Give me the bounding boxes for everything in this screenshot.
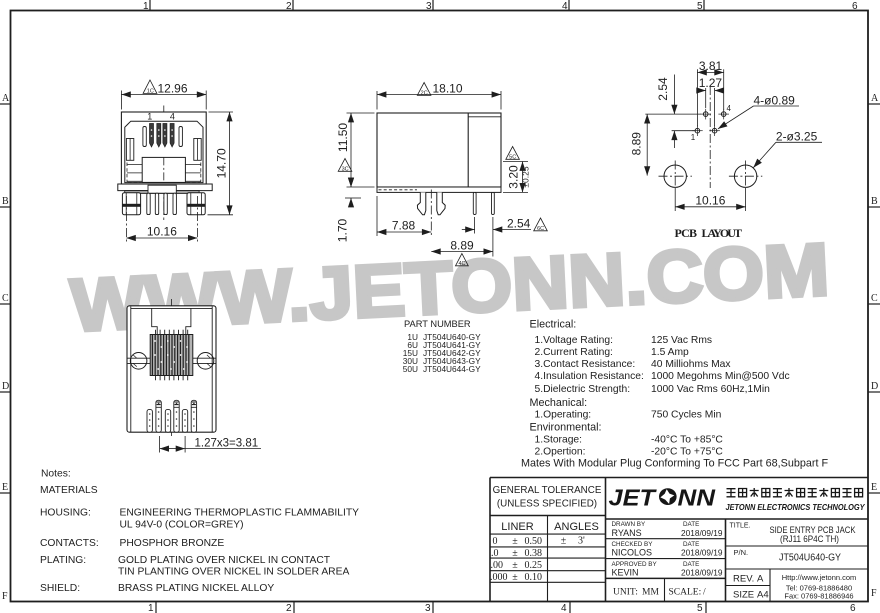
svg-text:JET: JET (609, 485, 657, 511)
svg-text:2: 2 (286, 603, 292, 613)
svg-text:125 Vac Rms: 125 Vac Rms (651, 335, 712, 346)
svg-text:4: 4 (170, 111, 175, 121)
svg-text:3': 3' (578, 536, 585, 547)
svg-text:F: F (871, 588, 877, 599)
svg-text:1C: 1C (147, 89, 154, 95)
svg-text:Mechanical:: Mechanical: (530, 397, 588, 409)
svg-text:0.50: 0.50 (525, 536, 543, 547)
svg-text:PLATING:: PLATING: (40, 555, 86, 566)
svg-text:Notes:: Notes: (41, 469, 71, 480)
svg-text:SHIELD:: SHIELD: (40, 583, 80, 594)
svg-text:E: E (2, 482, 8, 493)
svg-text:Fax: 0769-81886946: Fax: 0769-81886946 (784, 592, 853, 601)
svg-text:±: ± (512, 536, 518, 547)
svg-text:NN: NN (678, 485, 717, 511)
svg-text:1.27x3=3.81: 1.27x3=3.81 (195, 437, 259, 449)
svg-text:A: A (871, 93, 879, 104)
svg-text:JT504U640-GY: JT504U640-GY (779, 552, 841, 563)
svg-text:10.16: 10.16 (695, 193, 725, 207)
svg-text:4.Insulation Resistance:: 4.Insulation Resistance: (535, 371, 644, 382)
svg-text:LAYOUT: LAYOUT (702, 226, 743, 240)
svg-text:5: 5 (697, 1, 703, 12)
svg-text:1.5 Amp: 1.5 Amp (651, 347, 689, 358)
svg-text:A4: A4 (757, 590, 769, 601)
svg-text:±: ± (512, 560, 518, 571)
svg-text:3: 3 (425, 603, 431, 613)
svg-text:0.10: 0.10 (525, 572, 543, 583)
svg-text:1: 1 (148, 603, 154, 613)
svg-text:/: / (703, 588, 706, 598)
svg-text:2018/09/19: 2018/09/19 (681, 567, 723, 577)
svg-text:NICOLOS: NICOLOS (612, 548, 653, 558)
svg-text:D: D (871, 381, 878, 392)
svg-text:F: F (2, 591, 8, 602)
svg-text:KEVIN: KEVIN (612, 567, 639, 577)
svg-text:1.27: 1.27 (699, 76, 723, 90)
svg-text:1.Storage:: 1.Storage: (535, 435, 583, 446)
svg-text:4: 4 (561, 603, 567, 613)
svg-text:12.96: 12.96 (158, 81, 188, 95)
svg-text:2.Current Rating:: 2.Current Rating: (535, 347, 613, 358)
svg-text:7.88: 7.88 (392, 219, 416, 233)
svg-text:4: 4 (562, 1, 568, 12)
svg-text:2.54: 2.54 (656, 77, 670, 101)
svg-text:Environmental:: Environmental: (530, 422, 602, 434)
svg-text:UL 94V-0 (COLOR=GREY): UL 94V-0 (COLOR=GREY) (120, 520, 244, 531)
svg-text:40 Milliohms Max: 40 Milliohms Max (651, 359, 731, 370)
svg-text:SIZE: SIZE (733, 590, 754, 601)
svg-text:.0: .0 (491, 548, 499, 559)
svg-text:CONTACTS:: CONTACTS: (40, 538, 99, 549)
svg-text:±0.25: ±0.25 (521, 166, 531, 187)
svg-text:TITLE.: TITLE. (730, 523, 751, 530)
svg-text:2018/09/19: 2018/09/19 (681, 528, 723, 538)
svg-text:1000 Megohms Min@500 Vdc: 1000 Megohms Min@500 Vdc (651, 371, 790, 382)
svg-text:REV.: REV. (733, 574, 754, 585)
svg-text:±: ± (512, 572, 518, 583)
svg-text:1: 1 (147, 111, 152, 121)
svg-text:JETONN ELECTRONICS TECHNOLOGY: JETONN ELECTRONICS TECHNOLOGY (726, 502, 866, 512)
svg-text:50U: 50U (403, 364, 418, 374)
svg-text:5: 5 (697, 603, 703, 613)
svg-text:.00: .00 (491, 560, 504, 571)
svg-text:Http://www.jetonn.com: Http://www.jetonn.com (782, 573, 857, 582)
svg-text:BRASS PLATING NICKEL ALLOY: BRASS PLATING NICKEL ALLOY (118, 583, 274, 594)
svg-text:C: C (2, 293, 9, 304)
svg-text:A: A (2, 93, 10, 104)
svg-text:Electrical:: Electrical: (530, 319, 577, 331)
svg-text:4-ø0.89: 4-ø0.89 (754, 93, 796, 107)
svg-text:2: 2 (286, 1, 292, 12)
svg-text:1: 1 (691, 133, 696, 142)
svg-text:0.38: 0.38 (525, 548, 543, 559)
svg-text:0: 0 (493, 536, 498, 547)
svg-text:Mates With Modular Plug Confor: Mates With Modular Plug Conforming To FC… (521, 458, 828, 470)
svg-text:ENGINEERING THERMOPLASTIC FLAM: ENGINEERING THERMOPLASTIC FLAMMABILITY (120, 508, 360, 519)
svg-text:-40°C To +85°C: -40°C To +85°C (651, 435, 723, 446)
svg-text:3.Contact Resistance:: 3.Contact Resistance: (535, 359, 636, 370)
svg-text:3.81: 3.81 (699, 59, 723, 73)
svg-text:LINER: LINER (501, 521, 533, 533)
svg-text:8.89: 8.89 (450, 239, 474, 253)
svg-text:1: 1 (143, 1, 149, 12)
svg-text:1.Operating:: 1.Operating: (535, 410, 592, 421)
svg-text:MM: MM (642, 588, 659, 598)
svg-text:E: E (871, 482, 877, 493)
svg-text:14.70: 14.70 (215, 148, 229, 178)
svg-text:0.25: 0.25 (525, 560, 543, 571)
svg-text:HOUSING:: HOUSING: (40, 508, 91, 519)
svg-text:GOLD PLATING OVER NICKEL IN CO: GOLD PLATING OVER NICKEL IN CONTACT (118, 555, 331, 566)
svg-text:2.Opertion:: 2.Opertion: (535, 447, 586, 458)
svg-text:1000 Vac Rms 60Hz,1Min: 1000 Vac Rms 60Hz,1Min (651, 384, 770, 395)
svg-text:3C: 3C (342, 166, 349, 172)
svg-text:1.70: 1.70 (336, 218, 350, 242)
svg-text:10.16: 10.16 (147, 224, 177, 238)
svg-text:4C: 4C (458, 261, 465, 267)
svg-text:PART NUMBER: PART NUMBER (404, 319, 471, 329)
svg-text:B: B (2, 196, 9, 207)
svg-text:2018/09/19: 2018/09/19 (681, 548, 723, 558)
svg-text:C: C (871, 293, 878, 304)
svg-text:2.54: 2.54 (507, 216, 531, 230)
svg-text:.000: .000 (490, 572, 508, 583)
svg-text:(RJ11 6P4C TH): (RJ11 6P4C TH) (780, 534, 839, 544)
svg-text:5C: 5C (509, 154, 516, 160)
svg-text:3: 3 (426, 1, 432, 12)
svg-text:UNIT:: UNIT: (613, 588, 638, 598)
svg-text:6C: 6C (537, 226, 544, 232)
svg-text:8.89: 8.89 (629, 132, 643, 156)
svg-text:PCB: PCB (675, 226, 698, 240)
svg-text:B: B (871, 196, 878, 207)
svg-text:2-ø3.25: 2-ø3.25 (776, 130, 818, 144)
svg-text:GENERAL TOLERANCE: GENERAL TOLERANCE (493, 485, 602, 496)
svg-text:11.50: 11.50 (336, 123, 350, 152)
svg-text:P/N.: P/N. (734, 548, 749, 557)
svg-text:-20°C To +75°C: -20°C To +75°C (651, 447, 723, 458)
svg-text:RYANS: RYANS (612, 528, 642, 538)
svg-text:±: ± (512, 548, 518, 559)
svg-text:MATERIALS: MATERIALS (40, 485, 98, 496)
svg-text:±: ± (561, 536, 567, 547)
svg-text:JT504U644-GY: JT504U644-GY (423, 364, 481, 374)
svg-text:18.10: 18.10 (433, 82, 463, 96)
svg-text:6: 6 (850, 603, 856, 613)
svg-text:PHOSPHOR BRONZE: PHOSPHOR BRONZE (120, 538, 225, 549)
svg-text:5.Dielectric Strength:: 5.Dielectric Strength: (535, 384, 631, 395)
svg-text:SCALE:: SCALE: (669, 588, 702, 598)
svg-text:750 Cycles Min: 750 Cycles Min (651, 410, 722, 421)
svg-text:TIN PLANTING OVER NICKEL IN SO: TIN PLANTING OVER NICKEL IN SOLDER AREA (118, 567, 349, 578)
svg-text:(UNLESS SPECIFIED): (UNLESS SPECIFIED) (497, 499, 597, 510)
svg-text:6: 6 (852, 1, 858, 12)
svg-text:A: A (757, 574, 764, 585)
svg-text:D: D (2, 381, 9, 392)
svg-text:4: 4 (727, 104, 732, 113)
svg-text:3.20: 3.20 (507, 165, 521, 189)
svg-text:1.Voltage Rating:: 1.Voltage Rating: (535, 335, 613, 346)
svg-text:2C: 2C (421, 90, 428, 96)
svg-text:ANGLES: ANGLES (554, 521, 599, 533)
